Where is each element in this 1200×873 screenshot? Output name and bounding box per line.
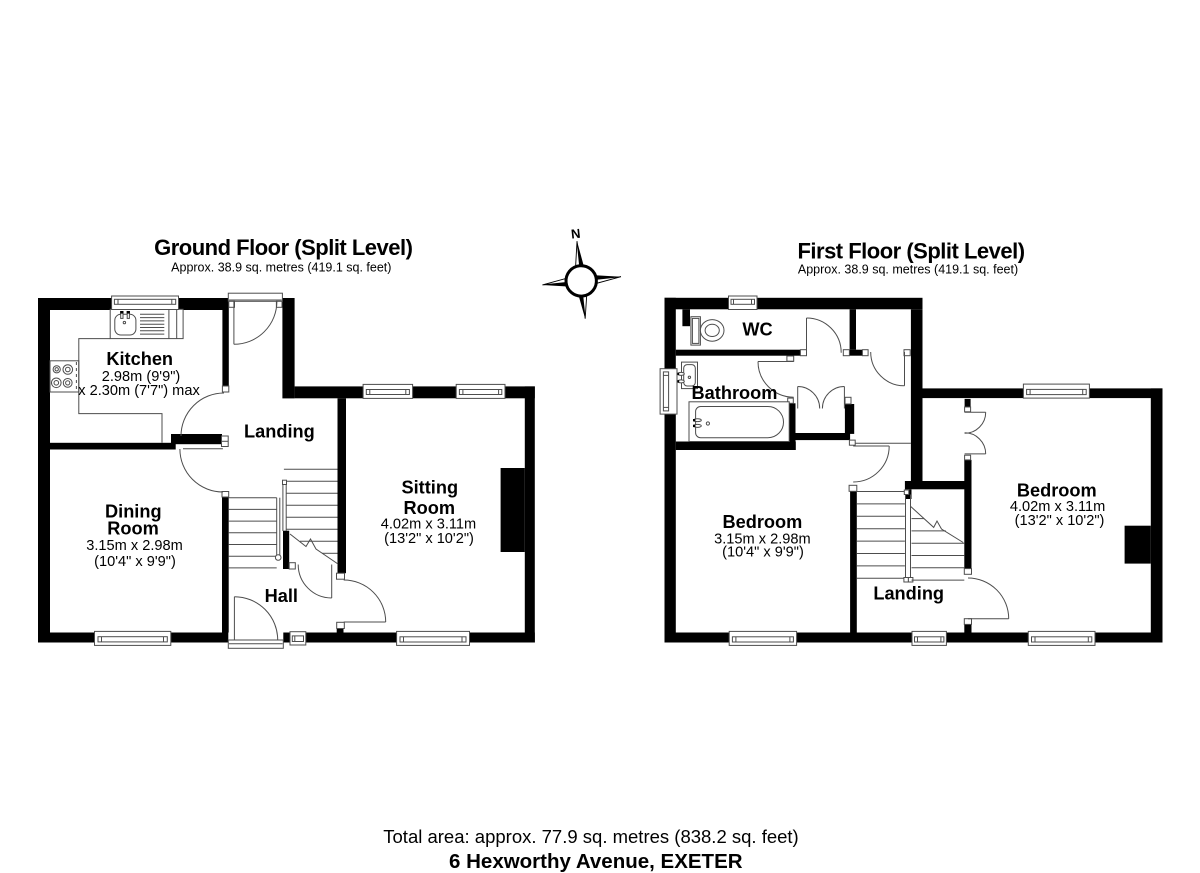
svg-text:Landing: Landing: [244, 422, 315, 442]
svg-text:Ground Floor (Split Level): Ground Floor (Split Level): [154, 235, 413, 260]
svg-text:Room: Room: [404, 498, 456, 518]
svg-text:(10'4" x 9'9"): (10'4" x 9'9"): [94, 554, 176, 570]
svg-text:3.15m x 2.98m: 3.15m x 2.98m: [86, 538, 183, 554]
svg-text:Hall: Hall: [265, 586, 298, 606]
svg-text:6 Hexworthy Avenue, EXETER: 6 Hexworthy Avenue, EXETER: [449, 850, 743, 873]
svg-text:Kitchen: Kitchen: [106, 349, 173, 369]
svg-text:First Floor (Split Level): First Floor (Split Level): [797, 239, 1024, 264]
svg-text:Sitting: Sitting: [402, 478, 459, 498]
svg-text:Landing: Landing: [873, 584, 944, 604]
svg-text:(10'4" x 9'9"): (10'4" x 9'9"): [722, 545, 804, 561]
svg-text:WC: WC: [742, 320, 772, 340]
svg-text:(13'2" x 10'2"): (13'2" x 10'2"): [1015, 513, 1105, 529]
svg-text:Bedroom: Bedroom: [1017, 481, 1097, 501]
svg-text:x 2.30m (7'7") max: x 2.30m (7'7") max: [78, 383, 200, 399]
svg-text:Total area: approx. 77.9 sq. m: Total area: approx. 77.9 sq. metres (838…: [383, 826, 798, 847]
svg-text:Bedroom: Bedroom: [722, 512, 802, 532]
svg-text:Approx. 38.9 sq. metres (419.1: Approx. 38.9 sq. metres (419.1 sq. feet): [798, 263, 1018, 277]
svg-text:Room: Room: [107, 519, 159, 539]
svg-text:(13'2" x 10'2"): (13'2" x 10'2"): [384, 531, 474, 547]
svg-text:Bathroom: Bathroom: [692, 383, 778, 403]
svg-text:N: N: [570, 226, 581, 242]
svg-text:Approx. 38.9 sq. metres (419.1: Approx. 38.9 sq. metres (419.1 sq. feet): [171, 261, 391, 275]
